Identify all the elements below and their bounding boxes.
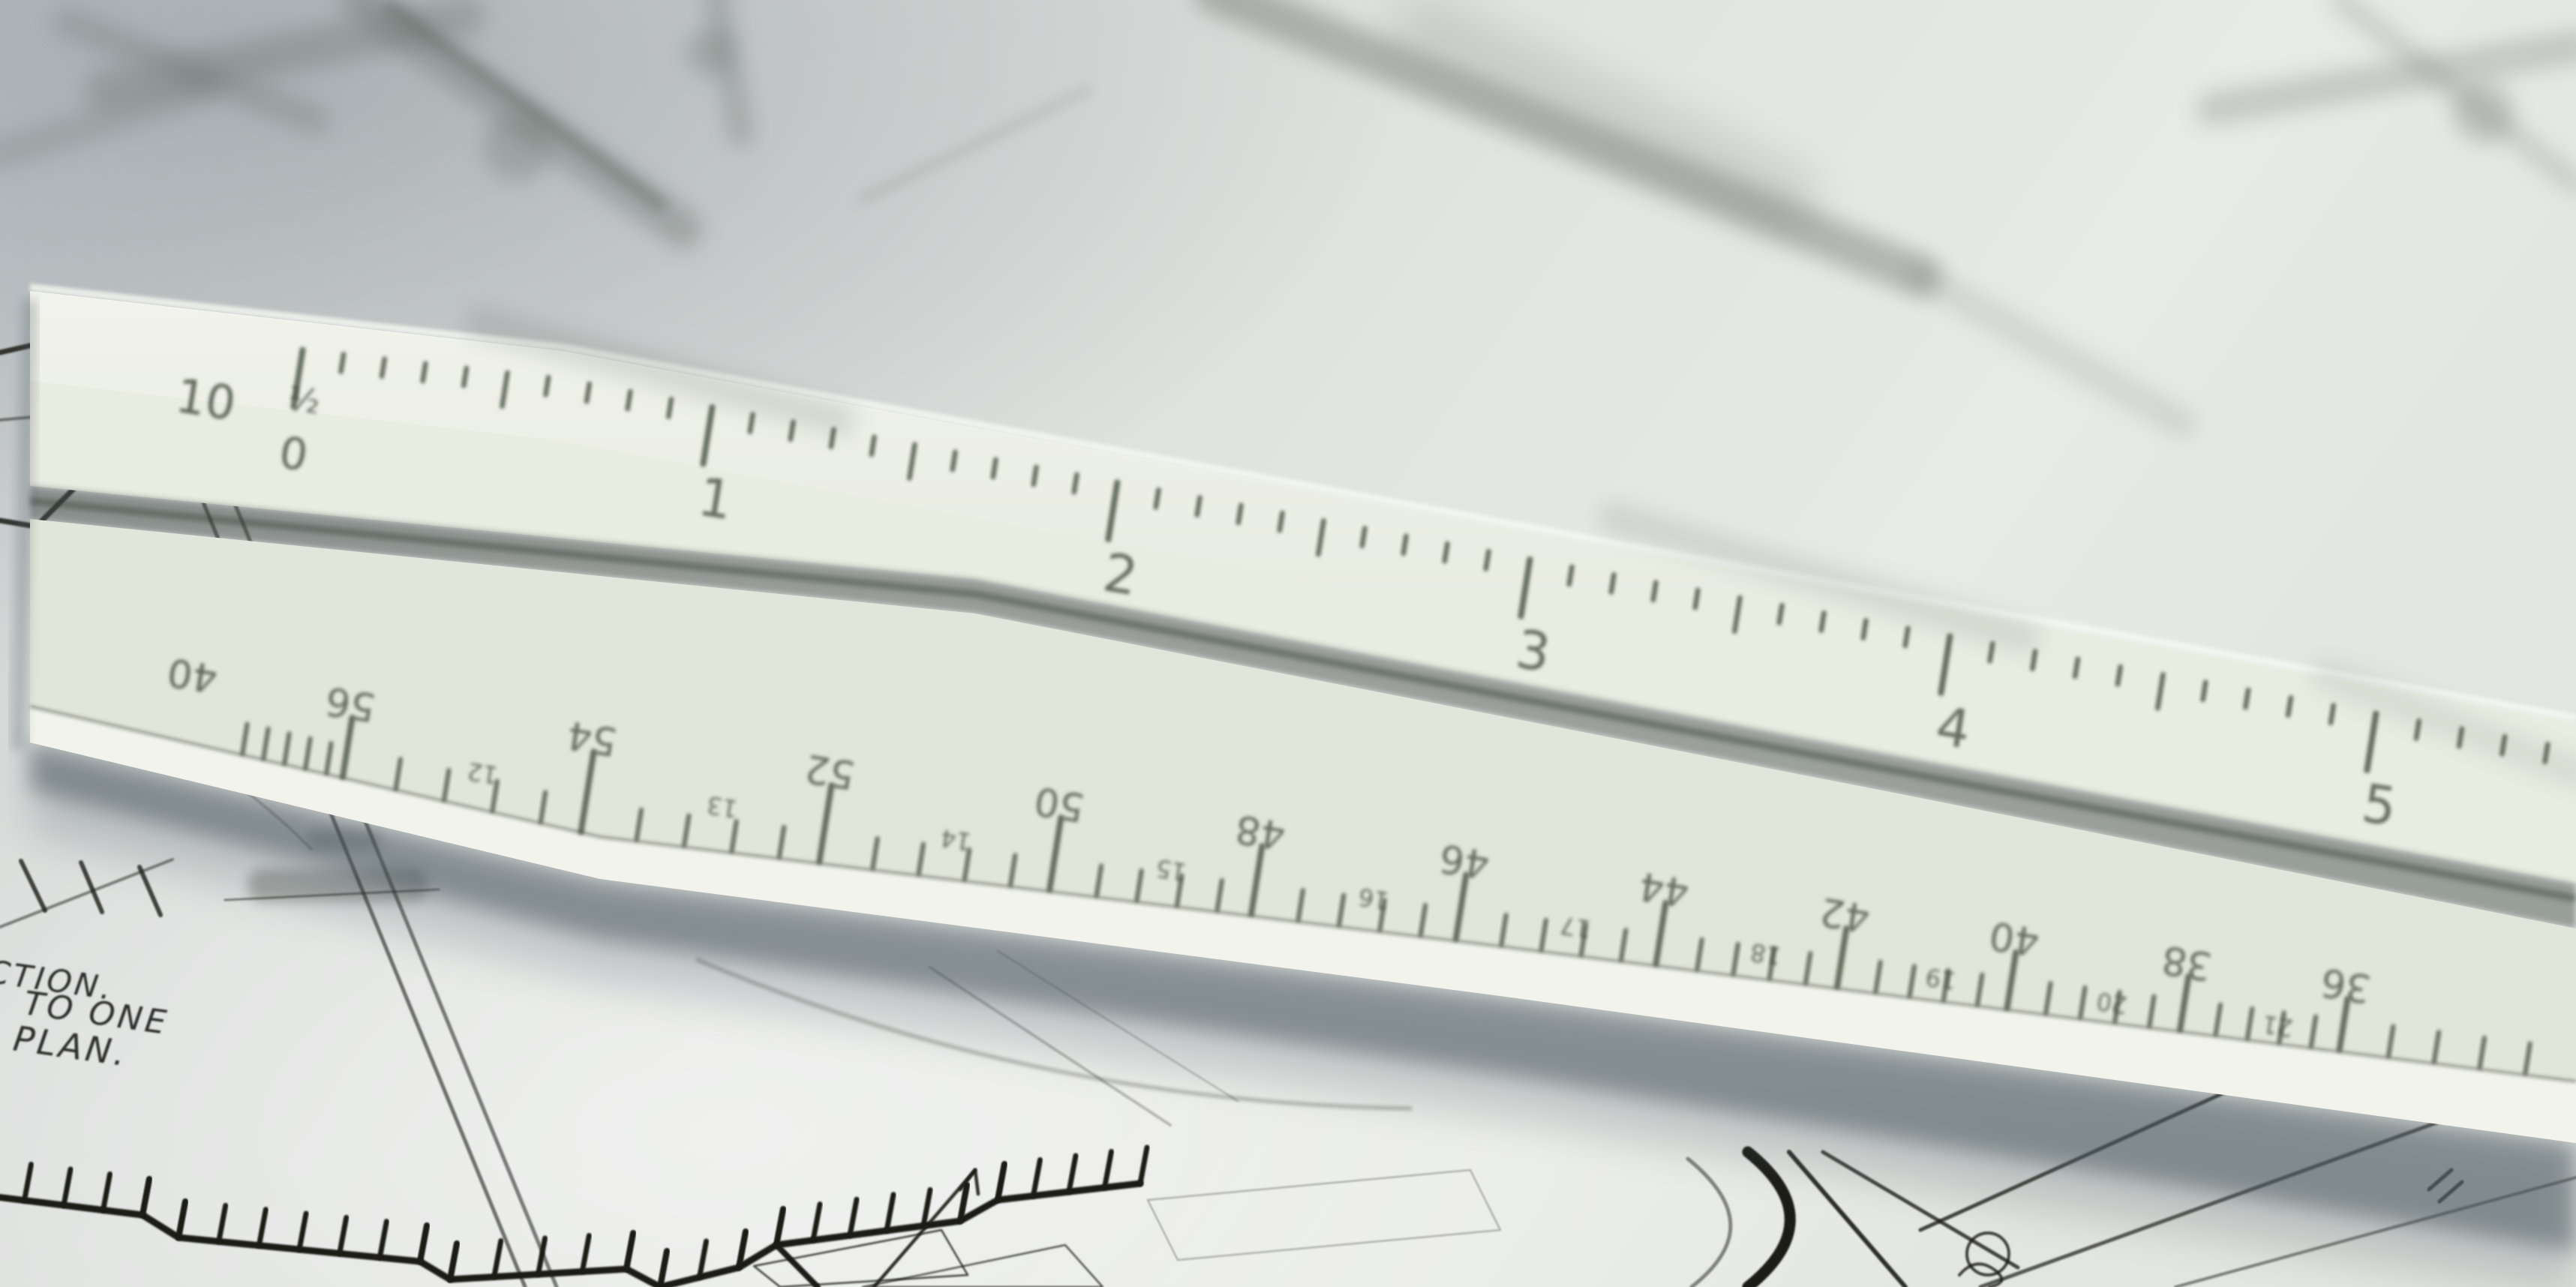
minor-number: 13: [705, 790, 740, 823]
smudge-blob: [483, 112, 552, 181]
scene-canvas: CTION. TO ONE PLAN. 12345565452504846444…: [0, 0, 2576, 1287]
minor-number: 15: [1154, 853, 1188, 886]
minor-number: 18: [1749, 937, 1783, 970]
minor-number: 19: [1923, 962, 1958, 995]
bottom-scale-label: 40: [164, 649, 221, 701]
half-fraction-label: ½: [285, 379, 323, 421]
minor-number: 21: [2260, 1009, 2295, 1042]
photo-of-scale-ruler-on-blueprint: CTION. TO ONE PLAN. 12345565452504846444…: [0, 0, 2576, 1287]
smudge-blob: [2451, 81, 2514, 144]
minor-number: 20: [2094, 986, 2129, 1019]
top-scale-label: 10: [173, 368, 239, 431]
